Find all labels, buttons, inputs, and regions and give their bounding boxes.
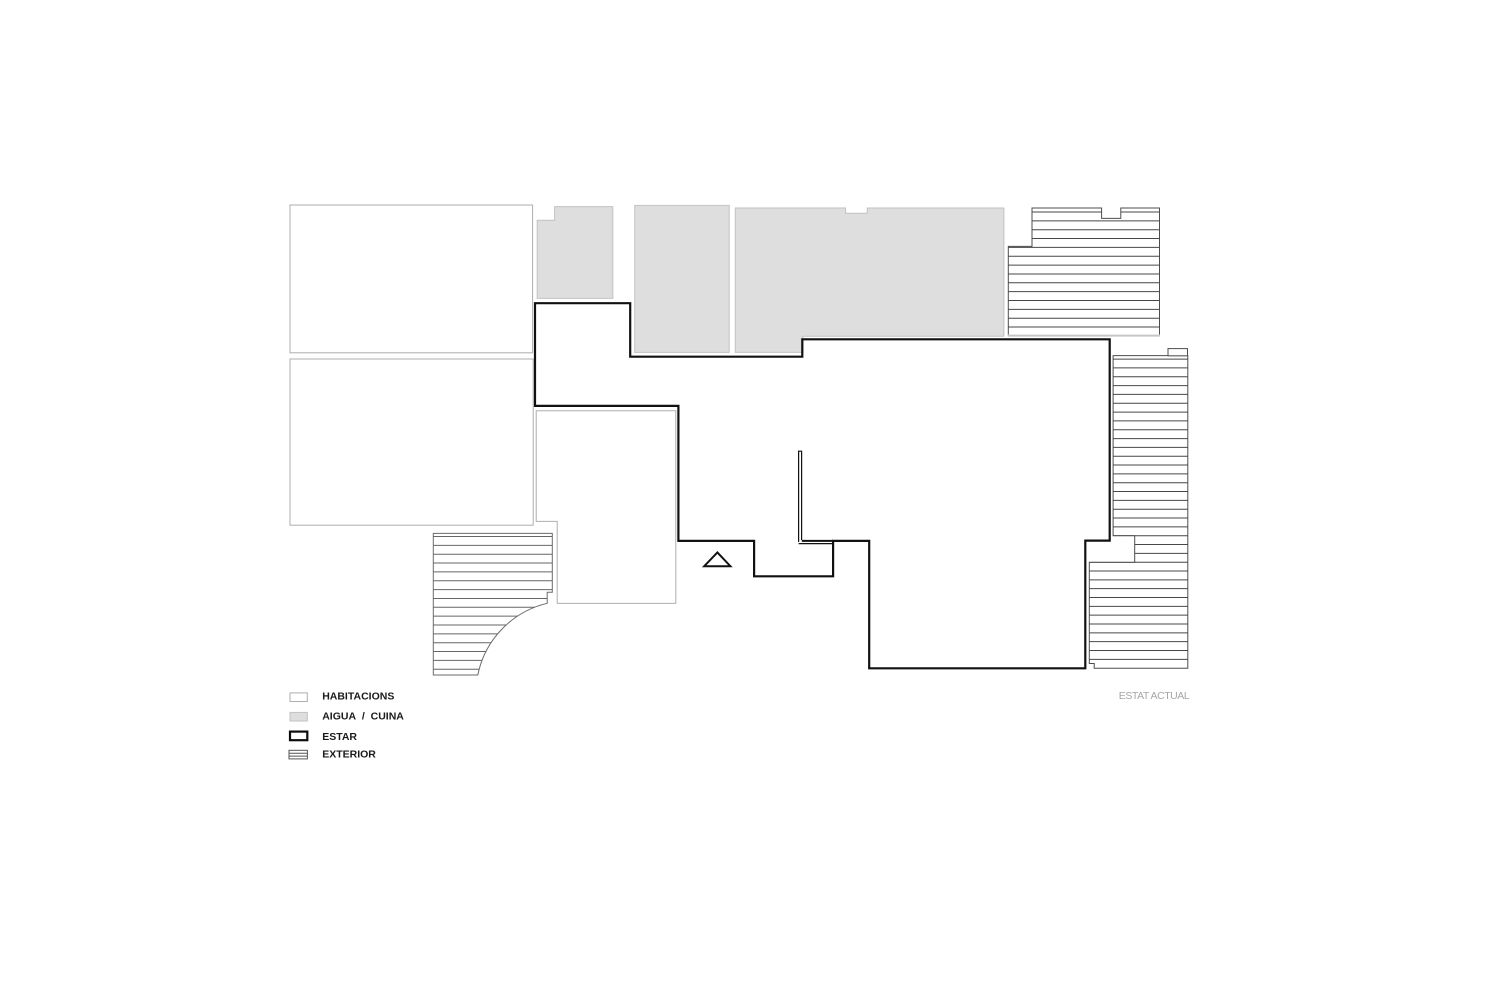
svg-text:ESTAR: ESTAR [322, 731, 357, 743]
svg-text:AIGUA / CUINA: AIGUA / CUINA [322, 710, 404, 722]
svg-text:EXTERIOR: EXTERIOR [322, 749, 376, 761]
svg-text:ESTAT ACTUAL: ESTAT ACTUAL [1119, 690, 1190, 702]
svg-text:HABITACIONS: HABITACIONS [322, 691, 394, 703]
